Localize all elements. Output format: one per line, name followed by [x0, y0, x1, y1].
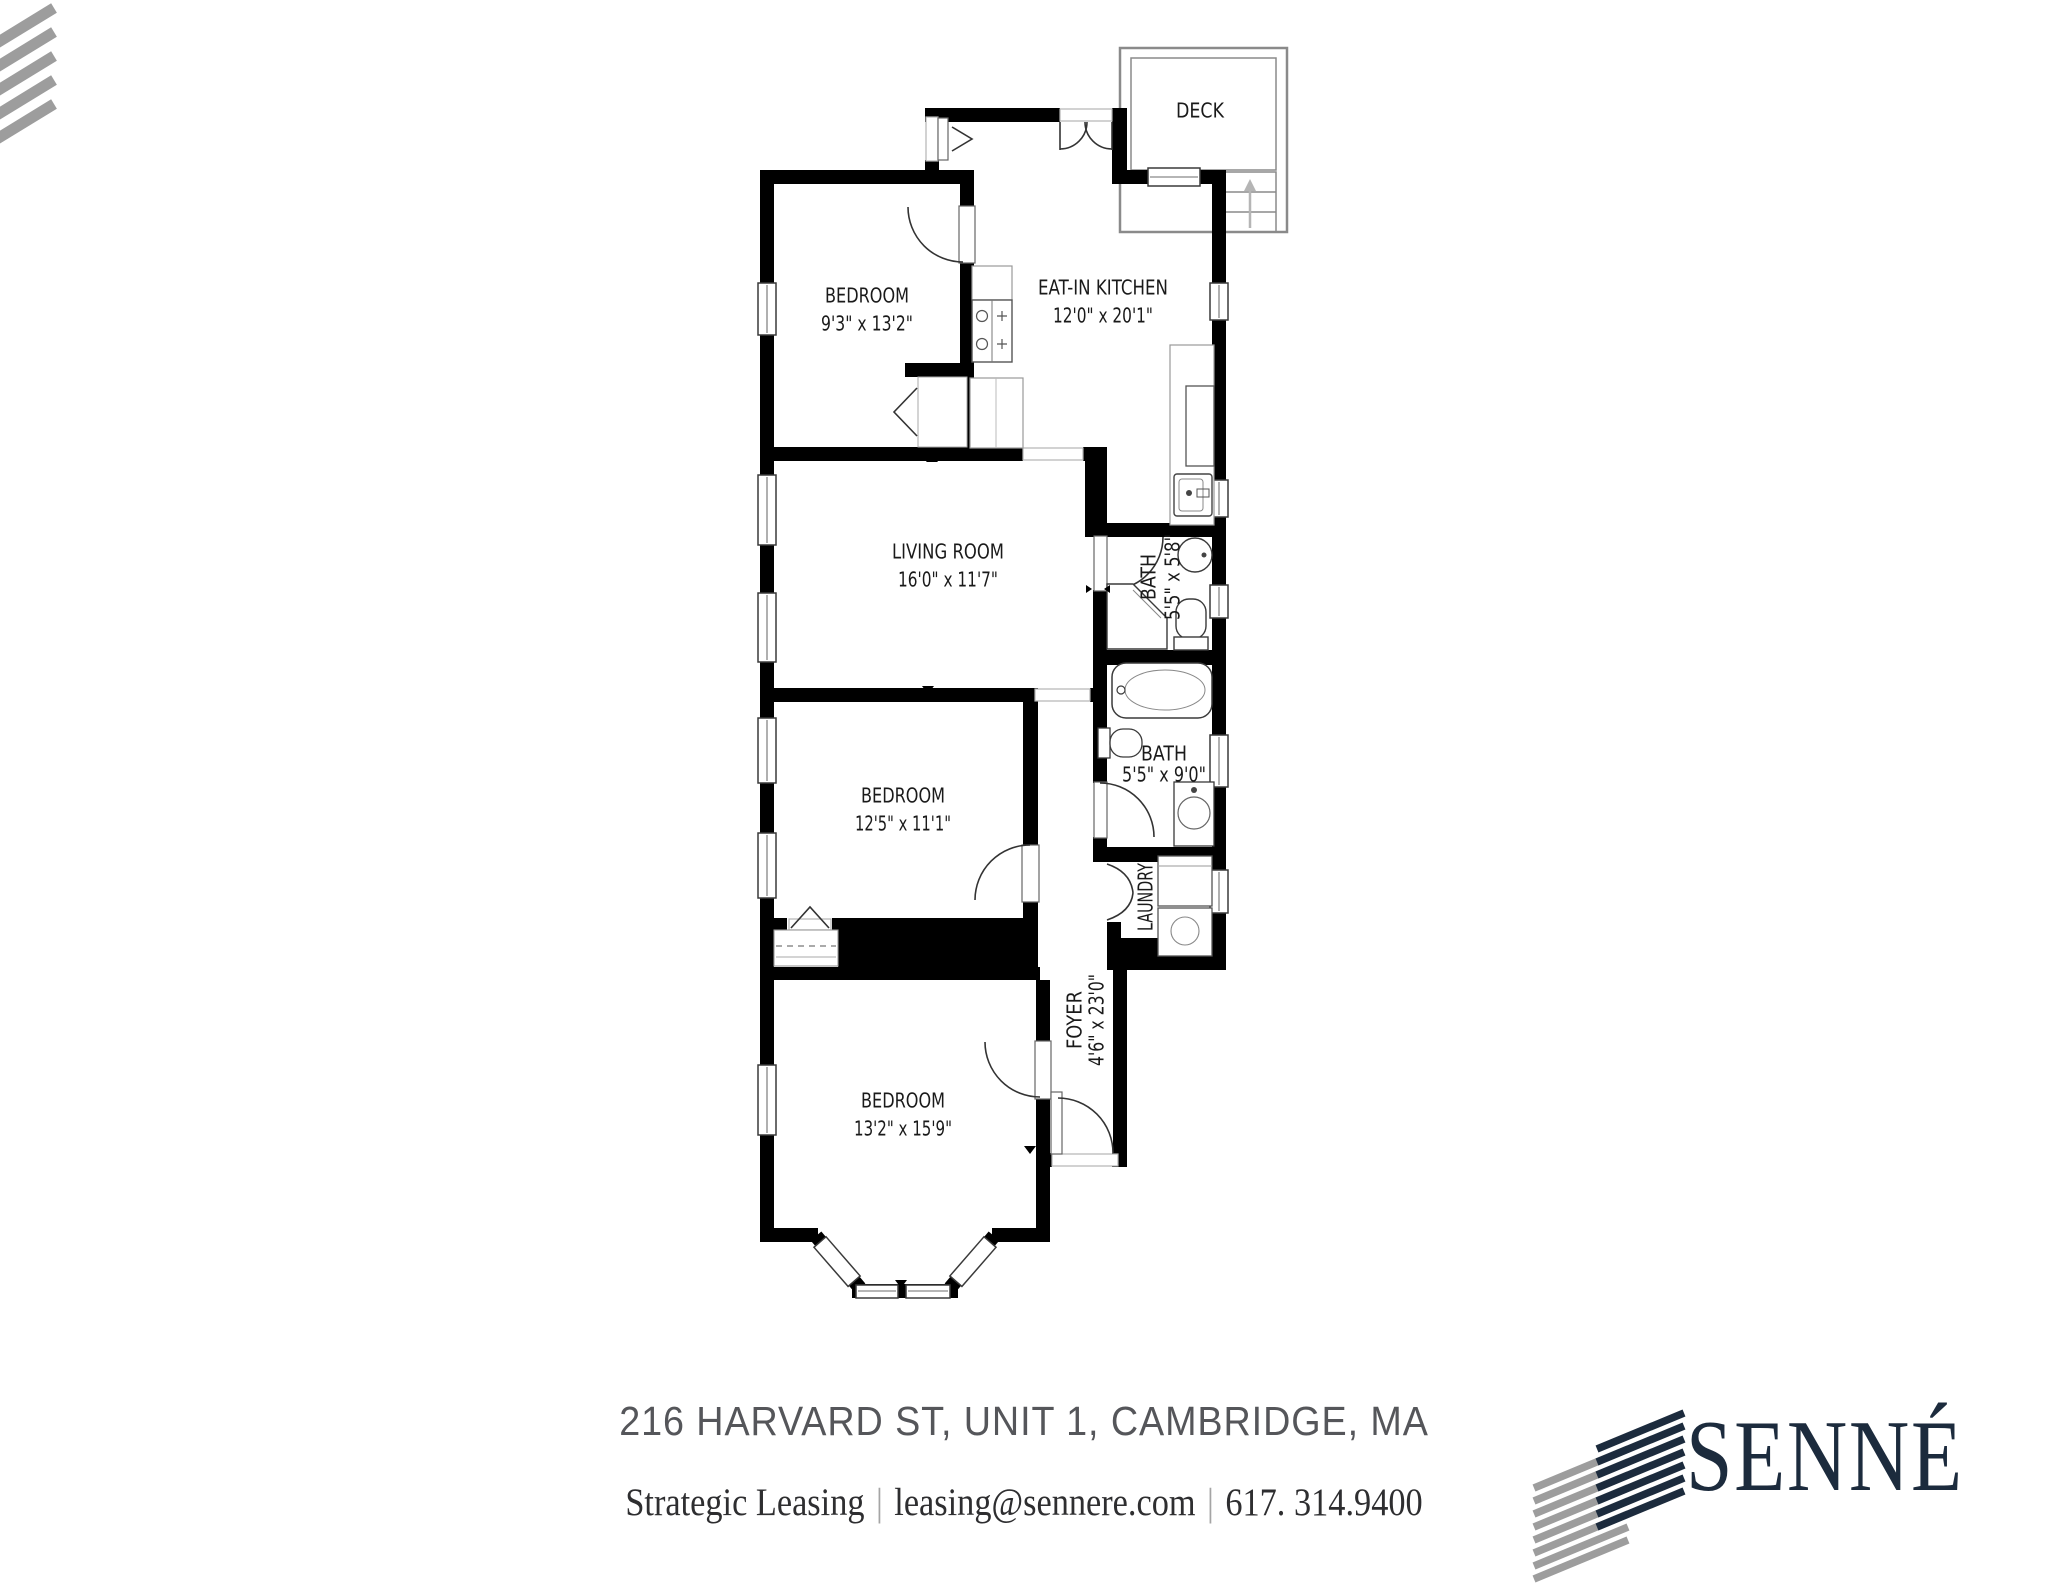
living-room-label: LIVING ROOM — [892, 540, 1004, 564]
foyer-dims: 4'6" x 23'0" — [1085, 974, 1109, 1066]
bath-small-dims: 5'5" x 5'8" — [1161, 534, 1185, 620]
corner-logo-mark — [0, 8, 54, 142]
contact-phone: 617. 314.9400 — [1225, 1481, 1422, 1524]
bedroom2-label: BEDROOM — [861, 784, 945, 808]
floor-plan: BEDROOM 9'3" x 13'2" EAT-IN KITCHEN 12'0… — [0, 0, 2048, 1583]
kitchen-label: EAT-IN KITCHEN — [1038, 276, 1168, 300]
deck-label: DECK — [1176, 99, 1225, 123]
bedroom3-dims: 13'2" x 15'9" — [854, 1117, 952, 1141]
property-address: 216 HARVARD ST, UNIT 1, CAMBRIDGE, MA — [82, 1398, 1966, 1445]
bedroom3-label: BEDROOM — [861, 1089, 945, 1113]
foyer-label: FOYER — [1063, 991, 1087, 1049]
separator: | — [1196, 1481, 1226, 1524]
bedroom1-dims: 9'3" x 13'2" — [821, 312, 913, 336]
contact-email: leasing@sennere.com — [894, 1481, 1195, 1524]
contact-line: Strategic Leasing|leasing@sennere.com|61… — [123, 1480, 1925, 1525]
bedroom1-label: BEDROOM — [825, 284, 909, 308]
laundry-label: LAUNDRY — [1134, 862, 1158, 931]
closet-fixtures — [774, 930, 838, 966]
bath-large-dims: 5'5" x 9'0" — [1122, 763, 1206, 787]
separator: | — [865, 1481, 895, 1524]
contact-company: Strategic Leasing — [625, 1481, 864, 1524]
bedroom2-dims: 12'5" x 11'1" — [855, 812, 951, 836]
page: BEDROOM 9'3" x 13'2" EAT-IN KITCHEN 12'0… — [0, 0, 2048, 1583]
deck — [1120, 48, 1287, 232]
kitchen-dims: 12'0" x 20'1" — [1053, 304, 1153, 328]
living-room-dims: 16'0" x 11'7" — [898, 568, 998, 592]
laundry-fixtures — [1158, 856, 1212, 956]
room-labels: BEDROOM 9'3" x 13'2" EAT-IN KITCHEN 12'0… — [821, 99, 1225, 1141]
bath-small-label: BATH — [1137, 554, 1161, 600]
senne-wordmark: SENNÉ — [1686, 1406, 1964, 1508]
